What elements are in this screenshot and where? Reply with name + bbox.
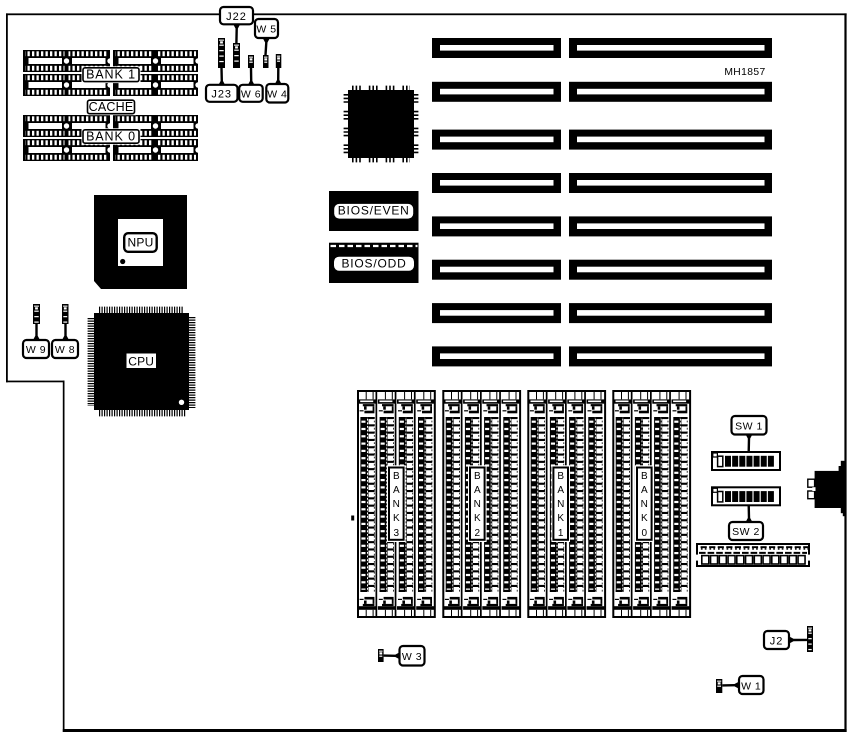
svg-text:N: N (474, 499, 481, 510)
svg-text:SW 2: SW 2 (732, 526, 760, 538)
svg-text:NPU: NPU (128, 235, 154, 249)
svg-text:BIOS/EVEN: BIOS/EVEN (338, 204, 410, 218)
svg-text:A: A (641, 485, 648, 496)
svg-text:K: K (557, 513, 564, 524)
svg-text:B: B (393, 471, 400, 482)
svg-text:K: K (474, 513, 481, 524)
svg-text:N: N (393, 499, 400, 510)
svg-text:SW 1: SW 1 (735, 420, 763, 432)
svg-text:W 8: W 8 (55, 344, 75, 356)
svg-text:W 5: W 5 (256, 24, 276, 36)
svg-text:J22: J22 (226, 11, 247, 23)
svg-text:K: K (393, 513, 400, 524)
svg-text:N: N (641, 499, 648, 510)
svg-text:B: B (557, 471, 564, 482)
svg-text:0: 0 (642, 528, 648, 539)
svg-text:2: 2 (475, 528, 481, 539)
svg-text:J2: J2 (770, 635, 784, 647)
svg-text:BANK 0: BANK 0 (86, 130, 136, 144)
svg-text:W 9: W 9 (26, 344, 46, 356)
svg-text:CPU: CPU (128, 355, 154, 369)
svg-text:1: 1 (558, 528, 564, 539)
svg-text:3: 3 (394, 528, 400, 539)
svg-text:B: B (641, 471, 648, 482)
svg-text:N: N (557, 499, 564, 510)
svg-text:A: A (557, 485, 564, 496)
svg-text:W 1: W 1 (741, 680, 761, 692)
svg-text:W 3: W 3 (402, 651, 422, 663)
svg-text:A: A (474, 485, 481, 496)
svg-text:A: A (393, 485, 400, 496)
svg-text:W 4: W 4 (267, 89, 287, 101)
svg-text:J23: J23 (211, 89, 232, 101)
svg-text:W 6: W 6 (241, 89, 261, 101)
svg-text:BIOS/ODD: BIOS/ODD (341, 256, 406, 270)
svg-text:K: K (641, 513, 648, 524)
svg-text:MH1857: MH1857 (724, 67, 765, 78)
svg-text:CACHE: CACHE (89, 100, 134, 114)
svg-text:BANK 1: BANK 1 (86, 68, 136, 82)
svg-text:B: B (474, 471, 481, 482)
